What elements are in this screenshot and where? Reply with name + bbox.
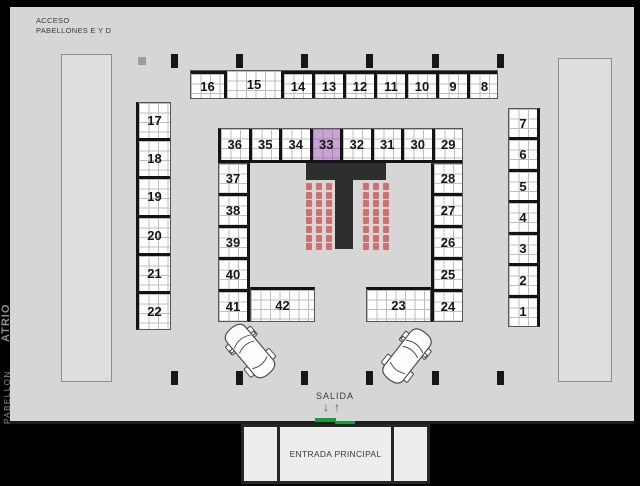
booth-label: 17 — [147, 113, 161, 128]
booth-label: 30 — [411, 137, 425, 152]
booth-42[interactable]: 42 — [251, 290, 314, 321]
booth-label: 23 — [391, 298, 405, 313]
pillar — [497, 54, 504, 68]
booth-label: 1 — [519, 304, 526, 319]
booth-6[interactable]: 6 — [509, 137, 537, 168]
booth-38[interactable]: 38 — [219, 193, 247, 225]
booth-label: 37 — [226, 171, 240, 186]
entrance-door-left — [315, 418, 336, 422]
chair — [326, 209, 332, 216]
booth-label: 39 — [226, 235, 240, 250]
chair — [363, 183, 369, 190]
chair — [316, 200, 322, 207]
booth-label: 5 — [519, 179, 526, 194]
chair — [316, 243, 322, 250]
stage-platform — [306, 161, 386, 180]
booth-label: 33 — [319, 137, 333, 152]
booth-34[interactable]: 34 — [279, 129, 310, 160]
booth-label: 31 — [380, 137, 394, 152]
chair — [306, 192, 312, 199]
pillar — [171, 54, 178, 68]
exit-arrow-down-icon: ↓ — [323, 400, 329, 414]
booth-19[interactable]: 19 — [139, 176, 170, 214]
booth-20[interactable]: 20 — [139, 215, 170, 253]
booth-40[interactable]: 40 — [219, 257, 247, 289]
main-entrance-building: ENTRADA PRINCIPAL — [241, 424, 430, 484]
chair — [363, 217, 369, 224]
chair — [363, 243, 369, 250]
acceso-line1: ACCESO — [36, 16, 111, 26]
booth-29[interactable]: 29 — [432, 129, 463, 160]
stage-runway — [335, 180, 353, 249]
chair — [383, 217, 389, 224]
booth-label: 2 — [519, 273, 526, 288]
pillar — [171, 371, 178, 385]
booth-13[interactable]: 13 — [312, 71, 343, 98]
entrance-right-section — [394, 427, 427, 481]
entrance-left-section — [244, 427, 277, 481]
booth-label: 24 — [441, 299, 455, 314]
booth-22[interactable]: 22 — [139, 291, 170, 329]
chair — [383, 226, 389, 233]
chair — [316, 217, 322, 224]
chair — [306, 217, 312, 224]
pabellon-label: PABELLON — [3, 348, 15, 424]
booth-30[interactable]: 30 — [401, 129, 432, 160]
chair — [363, 200, 369, 207]
chair — [383, 209, 389, 216]
booth-label: 13 — [322, 79, 336, 94]
chair — [326, 217, 332, 224]
chair — [383, 243, 389, 250]
pillar — [366, 54, 373, 68]
booth-21[interactable]: 21 — [139, 253, 170, 291]
floor-plan: ACCESO PABELLONES E Y D — [0, 0, 640, 486]
chair — [326, 200, 332, 207]
chair — [373, 243, 379, 250]
chair — [306, 235, 312, 242]
booth-label: 6 — [519, 147, 526, 162]
access-pavilions-label: ACCESO PABELLONES E Y D — [36, 16, 111, 35]
booth-label: 20 — [147, 228, 161, 243]
booth-label: 28 — [441, 171, 455, 186]
chair — [383, 183, 389, 190]
booth-36[interactable]: 36 — [221, 129, 249, 160]
chair — [326, 192, 332, 199]
booth-strip-right: 7654321 — [508, 108, 540, 327]
booth-label: 14 — [291, 79, 305, 94]
side-hall-right — [558, 58, 612, 382]
booth-label: 16 — [200, 79, 214, 94]
chair — [363, 235, 369, 242]
booth-label: 26 — [441, 235, 455, 250]
chair — [306, 200, 312, 207]
booth-strip-top: 1615141312111098 — [190, 70, 498, 99]
booth-label: 41 — [226, 299, 240, 314]
chair — [373, 226, 379, 233]
booth-33[interactable]: 33 — [310, 129, 341, 160]
pillar — [301, 371, 308, 385]
chair — [326, 226, 332, 233]
booth-16[interactable]: 16 — [191, 71, 224, 98]
booth-12[interactable]: 12 — [343, 71, 374, 98]
entrance-label: ENTRADA PRINCIPAL — [290, 449, 382, 459]
pillar — [301, 54, 308, 68]
booth-24[interactable]: 24 — [434, 289, 462, 321]
booth-label: 8 — [481, 79, 488, 94]
booth-label: 38 — [226, 203, 240, 218]
booth-28[interactable]: 28 — [434, 164, 462, 193]
column-marker — [138, 57, 146, 65]
booth-1[interactable]: 1 — [509, 295, 537, 326]
booth-3[interactable]: 3 — [509, 232, 537, 263]
booth-label: 36 — [228, 137, 242, 152]
chair — [373, 217, 379, 224]
chair — [316, 226, 322, 233]
acceso-line2: PABELLONES E Y D — [36, 26, 111, 36]
booth-10[interactable]: 10 — [405, 71, 436, 98]
booth-strip-23: 23 — [366, 287, 431, 322]
booth-label: 21 — [147, 266, 161, 281]
booth-label: 7 — [519, 116, 526, 131]
booth-label: 40 — [226, 267, 240, 282]
booth-label: 27 — [441, 203, 455, 218]
booth-label: 15 — [247, 77, 261, 92]
booth-label: 3 — [519, 241, 526, 256]
booth-27[interactable]: 27 — [434, 193, 462, 225]
exit-arrow-up-icon: ↑ — [334, 400, 340, 414]
booth-25[interactable]: 25 — [434, 257, 462, 289]
booth-label: 34 — [289, 137, 303, 152]
booth-5[interactable]: 5 — [509, 169, 537, 200]
booth-9[interactable]: 9 — [436, 71, 467, 98]
chair — [316, 235, 322, 242]
chair — [316, 183, 322, 190]
booth-label: 18 — [147, 151, 161, 166]
chair — [316, 209, 322, 216]
chair — [326, 235, 332, 242]
booth-strip-inner-top: 3635343332313029 — [218, 128, 463, 163]
booth-label: 32 — [350, 137, 364, 152]
chair — [306, 226, 312, 233]
booth-4[interactable]: 4 — [509, 200, 537, 231]
booth-17[interactable]: 17 — [139, 103, 170, 138]
booth-label: 35 — [258, 137, 272, 152]
booth-2[interactable]: 2 — [509, 263, 537, 294]
chair — [363, 226, 369, 233]
chair — [306, 243, 312, 250]
chair — [373, 209, 379, 216]
booth-strip-inner-right: 2827262524 — [431, 163, 463, 322]
atrio-label: ATRIO — [0, 290, 16, 342]
booth-label: 42 — [275, 298, 289, 313]
chair — [306, 183, 312, 190]
chair — [326, 243, 332, 250]
pillar — [432, 371, 439, 385]
booth-39[interactable]: 39 — [219, 225, 247, 257]
pillar — [236, 54, 243, 68]
booth-37[interactable]: 37 — [219, 164, 247, 193]
booth-label: 9 — [449, 79, 456, 94]
booth-label: 29 — [441, 137, 455, 152]
booth-label: 25 — [441, 267, 455, 282]
chair — [316, 192, 322, 199]
booth-strip-left: 171819202122 — [136, 102, 171, 330]
booth-35[interactable]: 35 — [249, 129, 280, 160]
booth-8[interactable]: 8 — [467, 71, 498, 98]
booth-label: 12 — [353, 79, 367, 94]
booth-23[interactable]: 23 — [367, 290, 430, 321]
pillar — [497, 371, 504, 385]
chair — [363, 209, 369, 216]
booth-7[interactable]: 7 — [509, 109, 537, 137]
side-hall-left — [61, 54, 112, 382]
booth-41[interactable]: 41 — [219, 289, 247, 321]
pillar — [432, 54, 439, 68]
entrance-main-section[interactable]: ENTRADA PRINCIPAL — [277, 427, 394, 481]
booth-label: 19 — [147, 189, 161, 204]
chair — [373, 235, 379, 242]
booth-strip-42: 42 — [250, 287, 315, 322]
booth-14[interactable]: 14 — [281, 71, 312, 98]
chair — [326, 183, 332, 190]
booth-11[interactable]: 11 — [374, 71, 405, 98]
chair — [383, 192, 389, 199]
booth-label: 11 — [384, 79, 398, 94]
booth-26[interactable]: 26 — [434, 225, 462, 257]
booth-strip-inner-left: 3738394041 — [218, 163, 250, 322]
booth-label: 4 — [519, 210, 526, 225]
chair — [363, 192, 369, 199]
booth-32[interactable]: 32 — [340, 129, 371, 160]
chair — [373, 200, 379, 207]
booth-18[interactable]: 18 — [139, 138, 170, 176]
chair — [306, 209, 312, 216]
pillar — [236, 371, 243, 385]
booth-label: 10 — [415, 79, 429, 94]
chair — [383, 200, 389, 207]
chair — [383, 235, 389, 242]
chair — [373, 183, 379, 190]
booth-label: 22 — [147, 304, 161, 319]
chair — [373, 192, 379, 199]
booth-15[interactable]: 15 — [224, 71, 281, 98]
booth-31[interactable]: 31 — [371, 129, 402, 160]
pillar — [366, 371, 373, 385]
